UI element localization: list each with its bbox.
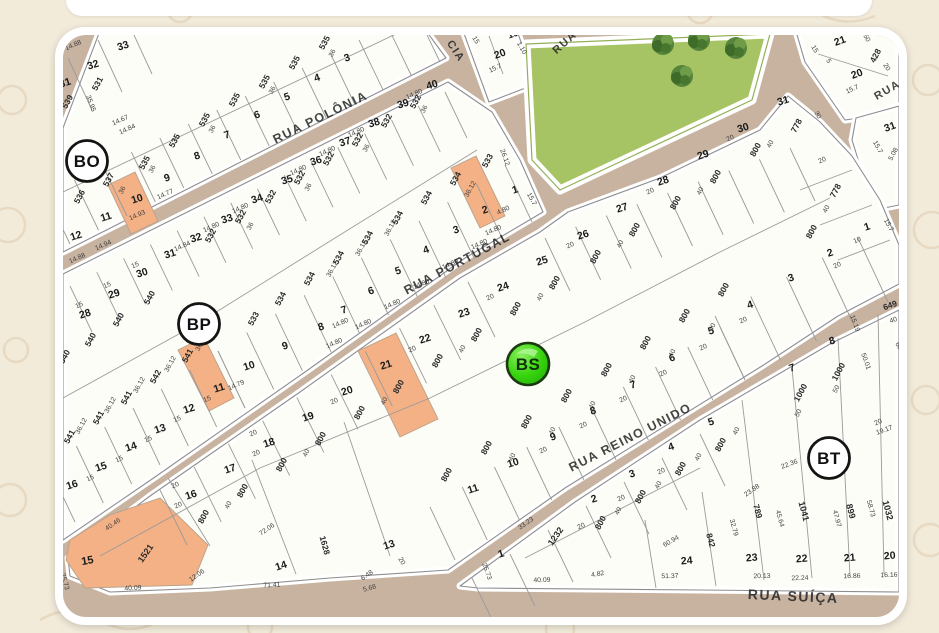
- lot-measurement: 40.09: [124, 585, 142, 593]
- doodle-shape: [912, 386, 939, 414]
- doodle-shape: [914, 524, 939, 556]
- doodle-shape: [0, 86, 26, 114]
- doodle-shape: [914, 212, 939, 248]
- doodle-shape: [0, 208, 25, 242]
- lot-number: 15: [80, 554, 94, 568]
- lot-number: 20: [883, 550, 896, 563]
- svg-text:BT: BT: [817, 449, 841, 468]
- lot-measurement: 51.37: [661, 573, 678, 581]
- lot-measurement: 40.09: [533, 577, 550, 585]
- lot-number: 23: [745, 552, 758, 565]
- lot-measurement: 20.13: [753, 573, 770, 581]
- marker-BT[interactable]: BT: [809, 438, 850, 479]
- tree-icon: [725, 37, 747, 59]
- top-card-remnant: [66, 0, 872, 16]
- lot-number: 21: [843, 552, 856, 565]
- lot-measurement: 71.41: [263, 582, 281, 590]
- svg-text:BS: BS: [516, 355, 541, 374]
- lot-measurement: 16.16: [880, 572, 897, 580]
- page: { "map": { "colors": { "street_tan": "#c…: [0, 0, 939, 633]
- lot-measurement: 16.86: [843, 573, 860, 581]
- lot-measurement: 22.24: [791, 575, 808, 583]
- map-content: 3456789101112333231192021203128293031323…: [63, 35, 899, 617]
- map-card: 3456789101112333231192021203128293031323…: [55, 27, 907, 625]
- map-svg: 3456789101112333231192021203128293031323…: [63, 35, 899, 617]
- doodle-shape: [0, 484, 26, 516]
- svg-text:BO: BO: [74, 152, 101, 171]
- tree-icon: [671, 65, 693, 87]
- marker-BO[interactable]: BO: [67, 141, 108, 182]
- doodle-shape: [4, 338, 28, 362]
- marker-BP[interactable]: BP: [179, 304, 220, 345]
- doodle-shape: [913, 65, 939, 95]
- svg-text:BP: BP: [187, 315, 212, 334]
- marker-BS[interactable]: BS: [507, 343, 549, 385]
- lot-number: 22: [795, 553, 808, 566]
- lot-number: 24: [680, 555, 693, 568]
